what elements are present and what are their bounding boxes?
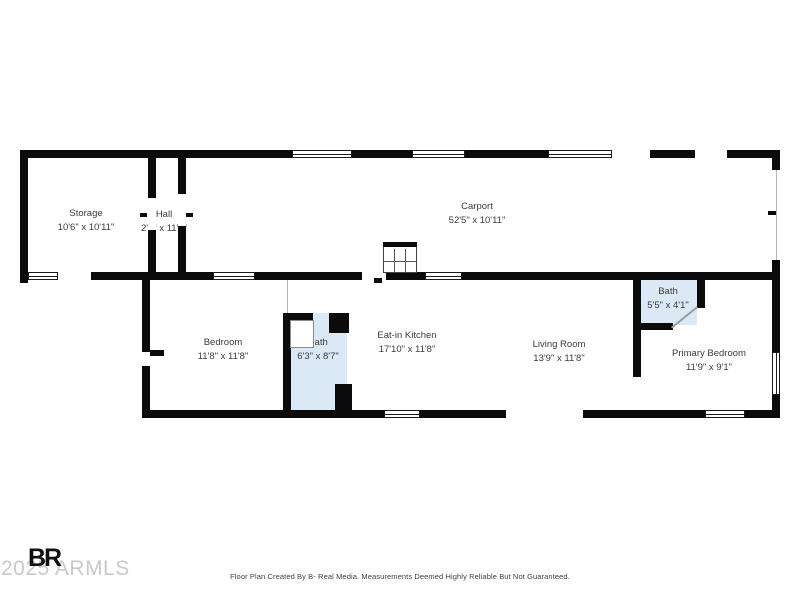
window-symbol	[292, 150, 352, 158]
room-dimensions: 13'9" x 11'8"	[499, 352, 619, 366]
room-name: Carport	[397, 200, 557, 214]
wall-opening-line	[776, 158, 777, 260]
door-leaf-symbol	[290, 320, 314, 348]
door-opening	[612, 150, 650, 158]
wall	[697, 280, 705, 308]
room-label-storage: Storage 10'6" x 10'11"	[26, 207, 146, 235]
wall	[335, 384, 352, 410]
room-label-bath-2: Bath 5'5" x 4'1"	[637, 285, 699, 313]
wall	[150, 350, 164, 356]
wall	[772, 158, 780, 170]
room-name: Storage	[26, 207, 146, 221]
floor-plan-canvas: Storage 10'6" x 10'11" Hall 2'8" x 11'0"…	[0, 0, 800, 600]
room-label-living-room: Living Room 13'9" x 11'8"	[499, 338, 619, 366]
room-label-carport: Carport 52'5" x 10'11"	[397, 200, 557, 228]
window-symbol	[548, 150, 612, 158]
wall	[142, 410, 780, 418]
door-opening	[142, 352, 150, 366]
window-symbol	[213, 272, 255, 280]
door-tick	[140, 213, 147, 217]
door-opening	[178, 194, 186, 226]
window-symbol	[772, 352, 780, 395]
wall-opening-line	[287, 280, 288, 313]
door-tick	[383, 242, 417, 247]
window-pane-line	[706, 414, 744, 415]
door-tick	[768, 211, 776, 215]
room-name: Eat-in Kitchen	[347, 329, 467, 343]
room-dimensions: 10'6" x 10'11"	[26, 221, 146, 235]
window-pane-line	[385, 414, 419, 415]
room-dimensions: 6'3" x 8'7"	[286, 350, 350, 364]
window-pane-line	[776, 353, 777, 394]
wall	[772, 260, 780, 272]
door-tick	[374, 278, 382, 283]
door-opening	[58, 272, 91, 280]
window-symbol	[384, 410, 420, 418]
window-symbol	[705, 410, 745, 418]
door-opening	[148, 198, 156, 230]
wall	[633, 323, 673, 330]
wall	[20, 150, 780, 158]
footer-disclaimer: Floor Plan Created By B- Real Media. Mea…	[0, 572, 800, 581]
window-symbol	[28, 272, 58, 280]
window-pane-line	[293, 154, 351, 155]
door-opening	[506, 410, 583, 418]
room-dimensions: 52'5" x 10'11"	[397, 214, 557, 228]
room-name: Primary Bedroom	[629, 347, 789, 361]
window-pane-line	[413, 154, 464, 155]
room-label-kitchen: Eat-in Kitchen 17'10" x 11'8"	[347, 329, 467, 357]
wall	[20, 150, 28, 283]
room-dimensions: 17'10" x 11'8"	[347, 343, 467, 357]
window-pane-line	[29, 276, 57, 277]
room-name: Bedroom	[163, 336, 283, 350]
room-name: Bath	[637, 285, 699, 299]
window-pane-line	[549, 154, 611, 155]
wall	[329, 313, 349, 333]
br-real-media-logo: BR	[28, 544, 60, 573]
stair-tread-line	[384, 261, 416, 262]
door-tick	[186, 213, 193, 217]
wall	[283, 313, 313, 320]
door-opening	[695, 150, 727, 158]
wall	[772, 280, 780, 418]
window-pane-line	[214, 276, 254, 277]
room-name: Living Room	[499, 338, 619, 352]
window-symbol	[412, 150, 465, 158]
wall	[142, 280, 150, 418]
room-label-bedroom: Bedroom 11'8" x 11'8"	[163, 336, 283, 364]
room-label-primary-bedroom: Primary Bedroom 11'9" x 9'1"	[629, 347, 789, 375]
window-pane-line	[426, 276, 461, 277]
window-symbol	[425, 272, 462, 280]
room-dimensions: 11'9" x 9'1"	[629, 361, 789, 375]
room-dimensions: 11'8" x 11'8"	[163, 350, 283, 364]
